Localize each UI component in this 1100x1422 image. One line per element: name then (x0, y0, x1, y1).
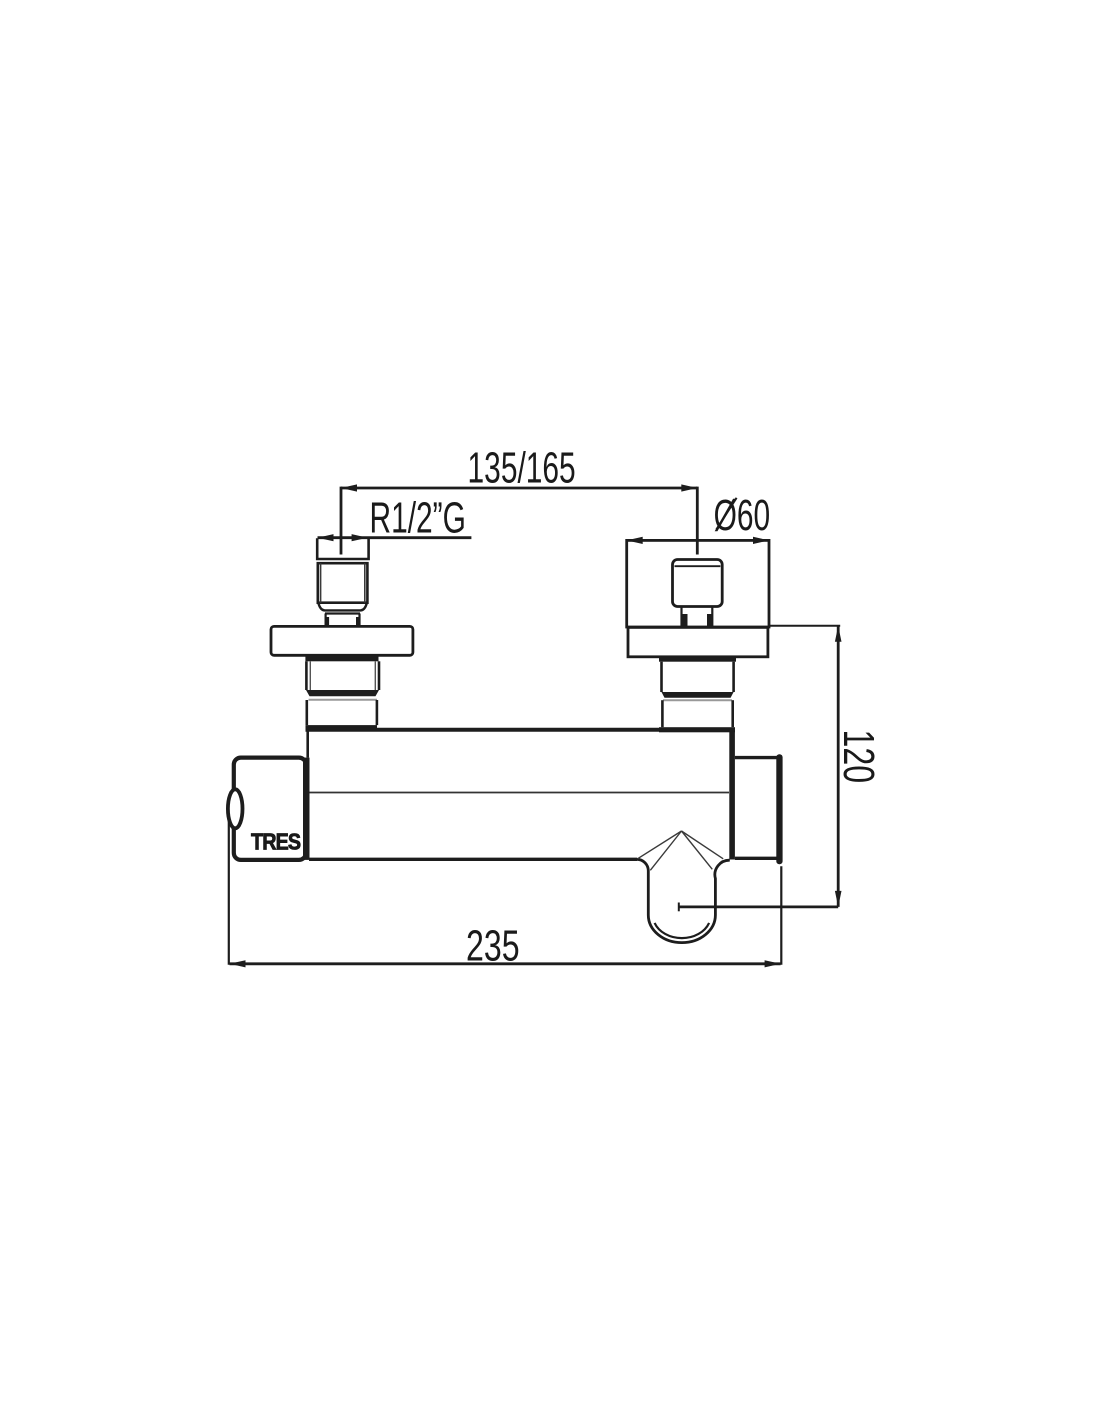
svg-text:Ø60: Ø60 (714, 490, 771, 539)
svg-text:R1/2”G: R1/2”G (370, 493, 466, 542)
svg-text:120: 120 (834, 730, 883, 784)
svg-text:TRES: TRES (251, 828, 301, 855)
svg-text:235: 235 (466, 922, 520, 971)
svg-text:135/165: 135/165 (468, 443, 576, 492)
